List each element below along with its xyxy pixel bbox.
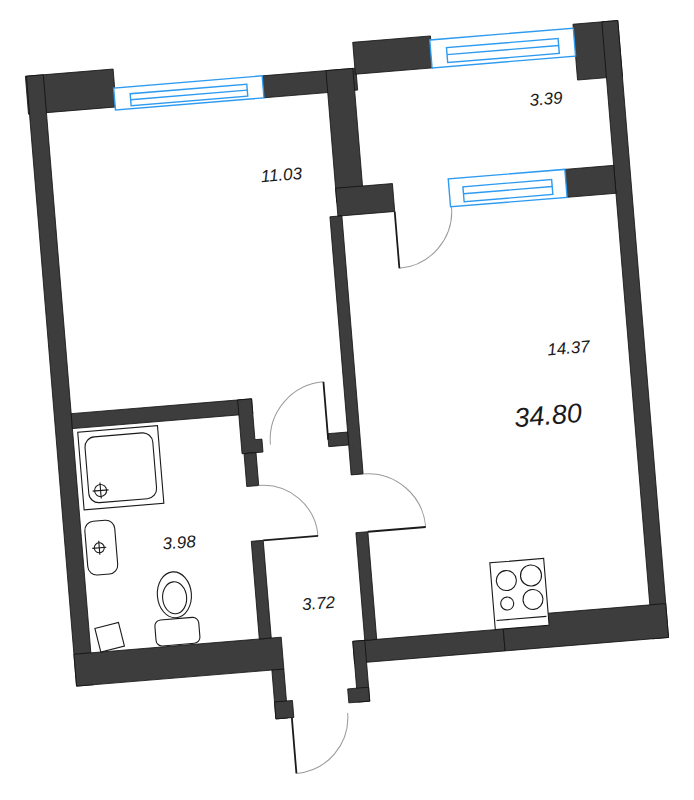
hallway-area-label: 3.72 [301,593,336,615]
wall-jog-block [238,398,263,454]
balcony-living-window [448,169,567,206]
fixtures [77,395,549,663]
walls [25,21,673,736]
wall-right-exterior [602,21,669,639]
toilet-icon [151,570,201,646]
balcony-door [395,207,456,268]
floor-plan-rotated-group: 11.03 3.39 14.37 34.80 3.98 3.72 [25,21,677,791]
corner-unit-icon [95,622,125,652]
entrance-door [292,713,352,773]
floor-plan-svg: 11.03 3.39 14.37 34.80 3.98 3.72 [0,0,694,800]
wall-bedroom-door-stub [328,432,349,447]
wall-bathroom-top [71,399,253,429]
wall-vestibule-left-jamb [274,700,293,718]
wall-bedroom-balcony-divider [326,68,364,202]
wall-bathroom-right-upper [244,453,259,487]
wall-left-exterior [26,75,93,686]
balcony-top-window [430,28,576,68]
living-door [363,469,426,532]
bathroom-door [259,481,318,540]
wall-vestibule-right-stub [348,687,370,703]
stove-icon [490,558,549,629]
sink-icon [84,519,118,575]
floor-plan-page: 11.03 3.39 14.37 34.80 3.98 3.72 [0,0,694,800]
wall-bathroom-right-lower [251,540,271,639]
wall-facade-step [353,36,433,74]
balcony-area-label: 3.39 [529,88,564,110]
bedroom-door [266,382,329,445]
wall-balcony-living-right [565,165,616,197]
shower-icon [78,426,164,510]
total-area-label: 34.80 [513,398,583,433]
bedroom-area-label: 11.03 [260,164,303,186]
living-area-label: 14.37 [547,337,591,359]
wall-hall-living-lower [356,532,377,641]
wall-balcony-living-left [336,184,395,217]
bathroom-area-label: 3.98 [162,532,197,554]
bedroom-top-window [114,76,264,110]
